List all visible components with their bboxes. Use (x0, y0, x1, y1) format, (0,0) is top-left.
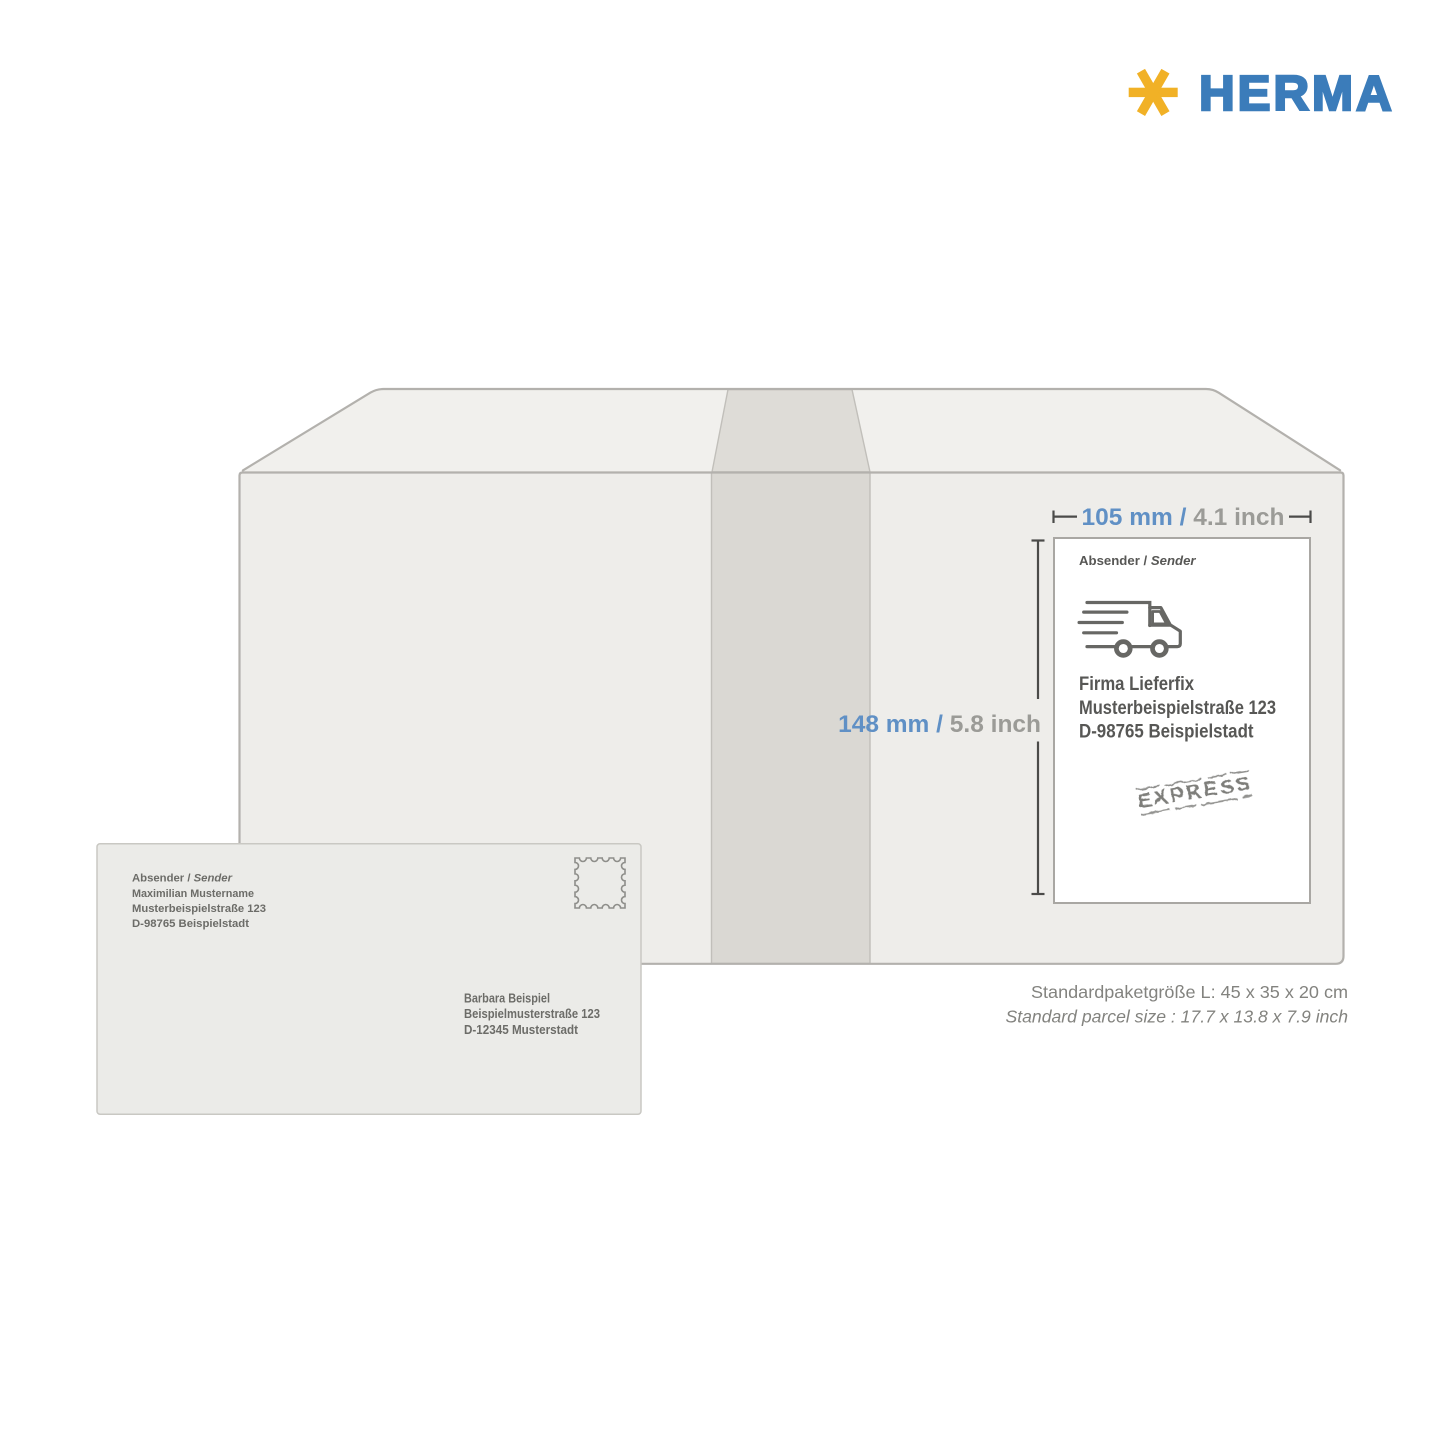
svg-text:105 mm / 4.1 inch: 105 mm / 4.1 inch (1082, 504, 1285, 531)
svg-text:D-98765 Beispielstadt: D-98765 Beispielstadt (1079, 722, 1254, 743)
svg-text:Absender / Sender: Absender / Sender (132, 873, 233, 885)
svg-text:D-98765 Beispielstadt: D-98765 Beispielstadt (132, 918, 249, 930)
svg-text:Musterbeispielstraße 123: Musterbeispielstraße 123 (1079, 698, 1276, 719)
svg-text:Barbara Beispiel: Barbara Beispiel (464, 991, 550, 1005)
svg-text:Standardpaketgröße L: 45 x 35: Standardpaketgröße L: 45 x 35 x 20 cm (1031, 982, 1348, 1002)
svg-text:Maximilian Mustername: Maximilian Mustername (132, 888, 254, 900)
svg-text:Standard parcel size : 17.7 x: Standard parcel size : 17.7 x 13.8 x 7.9… (1006, 1007, 1349, 1027)
svg-text:Firma Lieferfix: Firma Lieferfix (1079, 674, 1194, 695)
svg-text:D-12345 Musterstadt: D-12345 Musterstadt (464, 1023, 579, 1037)
svg-text:148 mm / 5.8 inch: 148 mm / 5.8 inch (838, 711, 1041, 738)
svg-text:Beispielmusterstraße 123: Beispielmusterstraße 123 (464, 1007, 600, 1021)
svg-text:Absender / Sender: Absender / Sender (1079, 553, 1196, 568)
svg-text:Musterbeispielstraße 123: Musterbeispielstraße 123 (132, 903, 266, 915)
svg-text:HERMA: HERMA (1199, 66, 1395, 121)
